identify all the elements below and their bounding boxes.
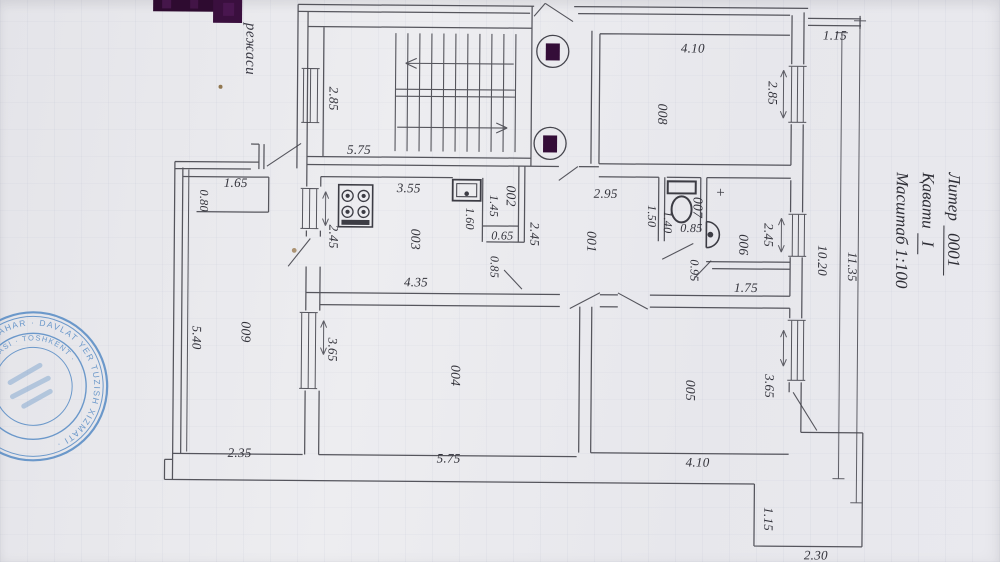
- room008-window: [788, 66, 806, 122]
- dim-nook-width: 0.65: [491, 228, 513, 243]
- bath-window: [788, 214, 806, 256]
- liter-value: 0001: [943, 225, 963, 275]
- dim-right-inner: 10.20: [814, 245, 830, 276]
- room005-balcony-door: [793, 392, 817, 430]
- room-label-007: 007: [690, 197, 706, 218]
- doors: [265, 1, 820, 430]
- dim-nook-gap: 0.85: [487, 256, 502, 278]
- svg-text:· TOSHKENT SHAHAR · DAVLAT YER: · TOSHKENT SHAHAR · DAVLAT YER TUZISH XI…: [0, 297, 123, 476]
- arrow-kitchen-window: [322, 192, 328, 226]
- caption-partial: режаси: [241, 23, 258, 75]
- official-stamp: · TOSHKENT SHAHAR · DAVLAT YER TUZISH XI…: [0, 290, 129, 482]
- dim-kitchen-top: 3.55: [397, 180, 421, 196]
- stove-icon: [338, 185, 372, 227]
- dim-hall-top: 2.95: [594, 186, 618, 202]
- dim-br-balcony-width: 2.30: [804, 547, 828, 562]
- scale-label: Масштаб 1:100: [892, 172, 912, 288]
- room-label-002: 002: [503, 185, 519, 206]
- stamp-center-marks: [6, 364, 55, 408]
- staircase: [395, 33, 516, 152]
- dim-balcony-height: 5.40: [188, 326, 204, 350]
- kitchen-sink-icon: [453, 180, 481, 201]
- seal-circles: [534, 35, 569, 159]
- arrow-005-window: [780, 330, 786, 366]
- redaction-block: [153, 0, 242, 23]
- room-label-001: 001: [583, 231, 599, 252]
- dim-sink-nook: 1.60: [462, 208, 477, 230]
- dim-stair-width: 5.75: [347, 142, 371, 158]
- arrow-008-window: [780, 70, 786, 118]
- dim-balcony-bottom: 2.35: [228, 445, 252, 461]
- dim-stair-window: 2.85: [325, 87, 341, 111]
- dim-balcony-nook-height: 0.80: [196, 190, 211, 212]
- room005-window: [787, 320, 805, 380]
- entrance-door: [534, 3, 573, 21]
- dim-005-bottom: 4.10: [686, 454, 710, 470]
- room-label-006: 006: [735, 234, 751, 255]
- room-label-008: 008: [654, 104, 670, 125]
- dim-wc-inner: 1.40: [660, 211, 675, 233]
- dim-kitchen-window: 2.45: [325, 225, 341, 249]
- floor-value: I: [917, 233, 937, 255]
- room004-window: [299, 312, 318, 388]
- dim-hall-height: 2.45: [526, 222, 542, 246]
- room-label-003: 003: [407, 229, 423, 250]
- nook-door: [504, 270, 522, 289]
- arrow-bath-window: [778, 218, 784, 252]
- vestibule-hall-door: [559, 166, 578, 180]
- plus-mark: +: [716, 185, 725, 202]
- liter-label: Литер: [944, 172, 963, 220]
- wc-door: [662, 243, 693, 259]
- balcony-top-door: [267, 143, 301, 166]
- dim-008-window: 2.85: [764, 81, 780, 105]
- floor-label: Қавати: [918, 172, 937, 228]
- dim-wc-width: 0.85: [680, 221, 702, 236]
- room-label-009: 009: [238, 321, 254, 342]
- dim-kitchen-bottom: 4.35: [404, 274, 428, 290]
- dim-top-right-balcony: 1.15: [823, 28, 847, 44]
- title-block: Литер 0001 Қавати I Масштаб 1:100: [870, 172, 963, 351]
- kitchen-window: [300, 188, 318, 228]
- dim-bath-window: 2.45: [760, 223, 776, 247]
- room-label-004: 004: [447, 365, 463, 386]
- scanned-floorplan-page: · TOSHKENT SHAHAR · DAVLAT YER TUZISH XI…: [0, 0, 1000, 562]
- dim-balcony-nook-width: 1.65: [224, 175, 248, 191]
- kitchen-balcony-door: [288, 238, 310, 266]
- stair-window: [301, 68, 319, 122]
- dim-right-outer: 11.35: [844, 252, 860, 282]
- stamp-ring-outer-text: · TOSHKENT SHAHAR · DAVLAT YER TUZISH XI…: [0, 297, 123, 476]
- dim-wc-height: 1.50: [644, 205, 659, 227]
- room005-door: [618, 293, 648, 309]
- washbasin-icon: [706, 222, 719, 248]
- dim-005-window: 3.65: [761, 374, 777, 398]
- dim-br-balcony-height: 1.15: [760, 507, 776, 531]
- dim-004-window: 3.65: [324, 338, 340, 362]
- windows: [299, 62, 808, 392]
- redaction-square-1: [546, 43, 560, 60]
- dim-bath-bottom: 1.75: [734, 280, 758, 296]
- dim-008-width: 4.10: [681, 40, 705, 56]
- floorplan: · TOSHKENT SHAHAR · DAVLAT YER TUZISH XI…: [0, 0, 1000, 562]
- room-label-005: 005: [682, 380, 698, 401]
- dim-004-bottom: 5.75: [437, 451, 461, 467]
- dim-closet-height: 1.45: [486, 195, 501, 217]
- redaction-square-2: [543, 135, 557, 152]
- dim-bath-door-gap: 0.95: [687, 259, 702, 281]
- room004-door: [570, 293, 600, 309]
